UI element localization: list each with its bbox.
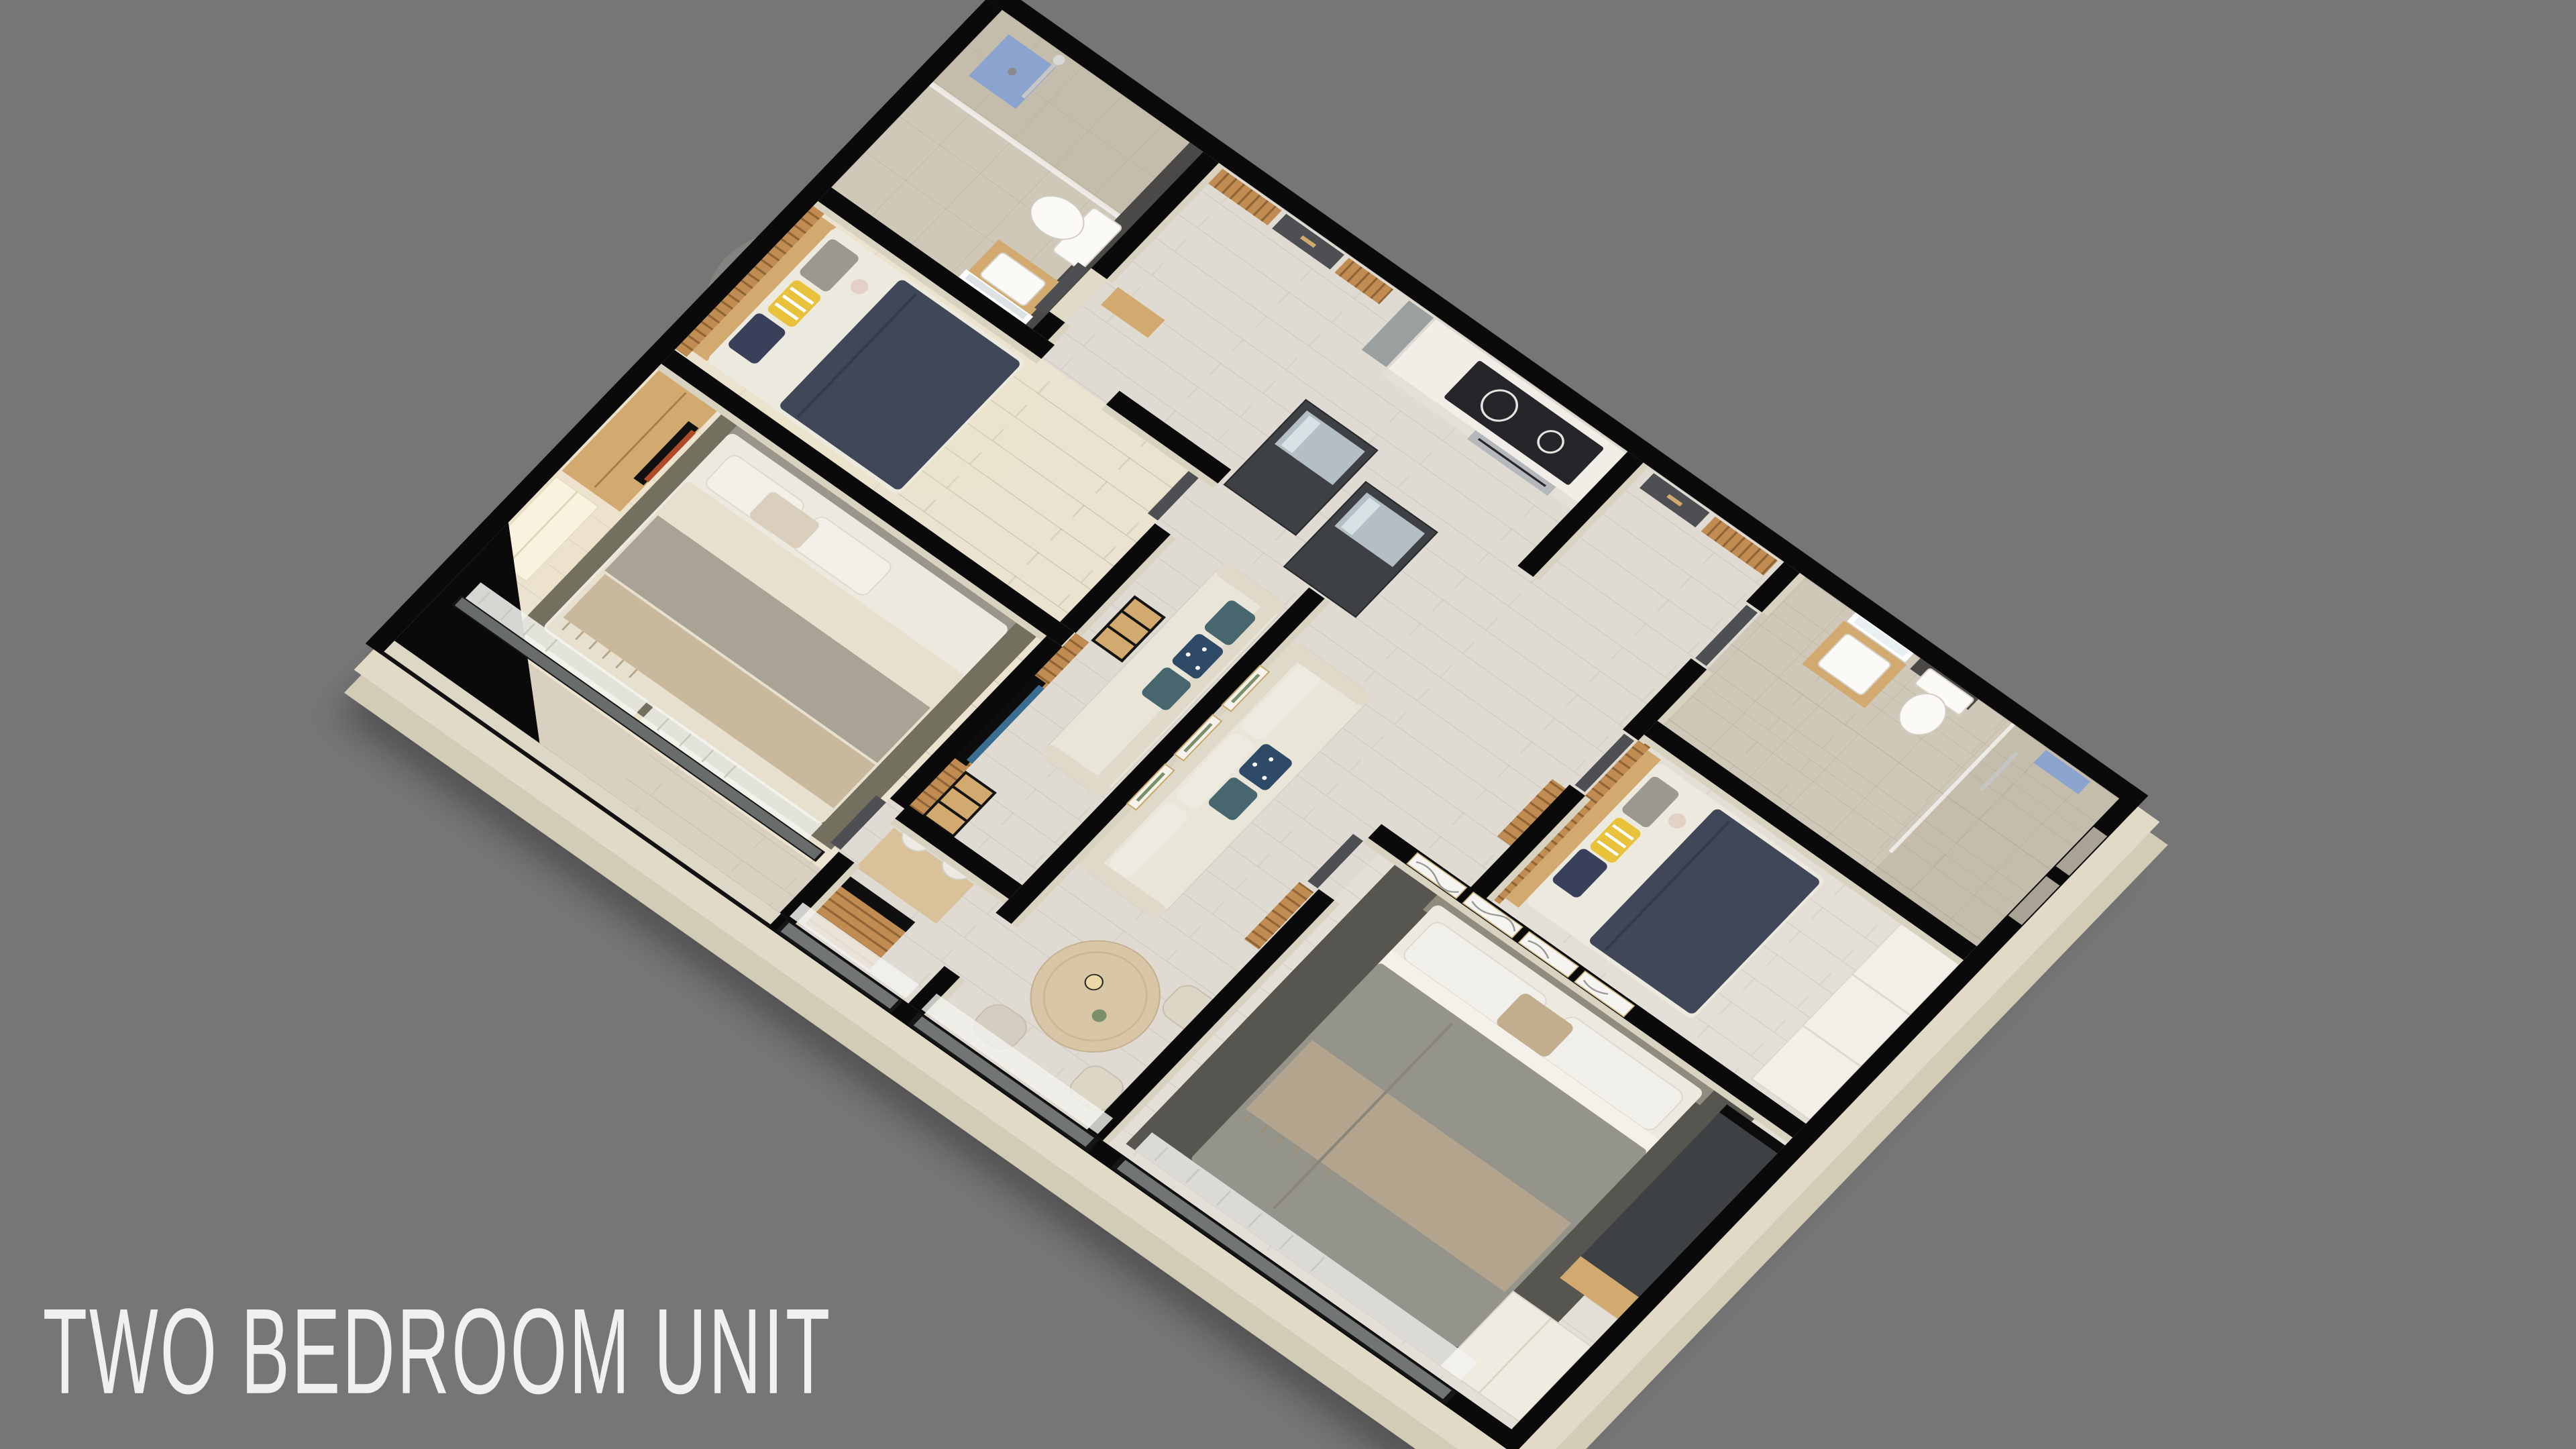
page-title: TWO BEDROOM UNIT bbox=[43, 1283, 833, 1419]
floor-plan-render: TWO BEDROOM UNIT bbox=[0, 0, 2576, 1449]
floor-plan-canvas: TWO BEDROOM UNIT bbox=[0, 0, 2576, 1449]
